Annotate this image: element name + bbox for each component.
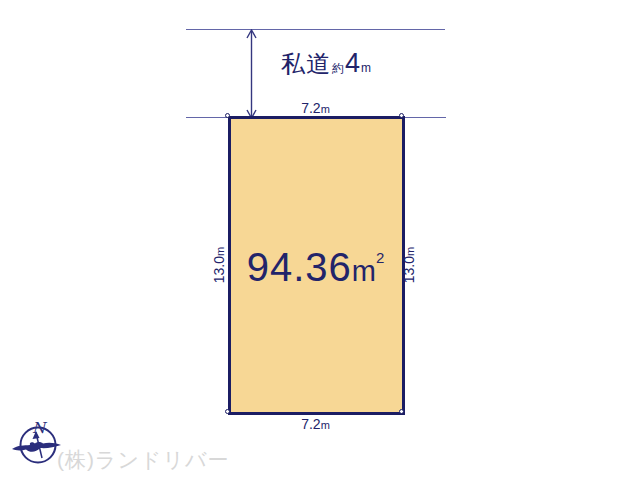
north-compass-icon: N — [10, 418, 64, 468]
area-value: 94.36 — [247, 245, 352, 289]
corner-point-top-left — [225, 113, 230, 118]
road-width-value: 4 — [345, 50, 360, 77]
land-plot-diagram: 私道 約 4 m 7.2m 94.36m2 13.0m 13.0m 7.2m N… — [0, 0, 640, 480]
bottom-width-unit: m — [321, 419, 330, 431]
right-depth-unit: m — [404, 247, 416, 256]
corner-point-bottom-right — [399, 409, 404, 414]
road-width-unit: m — [361, 62, 371, 74]
right-depth-value: 13.0 — [401, 256, 417, 283]
left-depth-value: 13.0 — [211, 256, 227, 283]
road-approx-text: 約 — [332, 62, 344, 74]
top-width-value: 7.2 — [301, 100, 320, 116]
dimension-left-depth: 13.0m — [212, 233, 226, 297]
dimension-bottom-width: 7.2m — [227, 417, 404, 431]
road-name-text: 私道 — [281, 52, 331, 76]
corner-point-top-right — [399, 113, 404, 118]
dimension-right-depth: 13.0m — [402, 233, 416, 297]
road-edge-line-top — [186, 29, 445, 30]
private-road-label: 私道 約 4 m — [281, 50, 371, 77]
bottom-width-value: 7.2 — [301, 416, 320, 432]
compass-north-letter: N — [32, 419, 48, 437]
parcel-area-label: 94.36m2 — [227, 247, 404, 287]
company-watermark: (株)ランドリバー — [57, 446, 229, 474]
area-unit: m — [352, 255, 376, 287]
left-depth-unit: m — [214, 247, 226, 256]
area-unit-superscript: 2 — [376, 249, 384, 266]
top-width-unit: m — [321, 103, 330, 115]
corner-point-bottom-left — [225, 409, 230, 414]
dimension-top-width: 7.2m — [227, 101, 404, 115]
